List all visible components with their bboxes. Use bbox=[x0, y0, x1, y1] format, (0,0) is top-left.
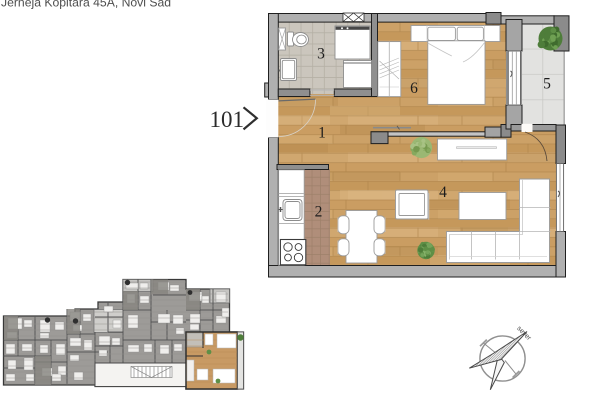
svg-text:6: 6 bbox=[410, 80, 418, 97]
svg-text:2: 2 bbox=[315, 204, 323, 221]
svg-text:4: 4 bbox=[439, 184, 447, 201]
svg-text:101: 101 bbox=[210, 107, 245, 132]
svg-text:Jerneja Kopitara 45A, Novi Sad: Jerneja Kopitara 45A, Novi Sad bbox=[1, 0, 171, 9]
svg-text:1: 1 bbox=[318, 125, 326, 142]
svg-text:5: 5 bbox=[543, 76, 551, 93]
svg-text:3: 3 bbox=[317, 46, 325, 63]
